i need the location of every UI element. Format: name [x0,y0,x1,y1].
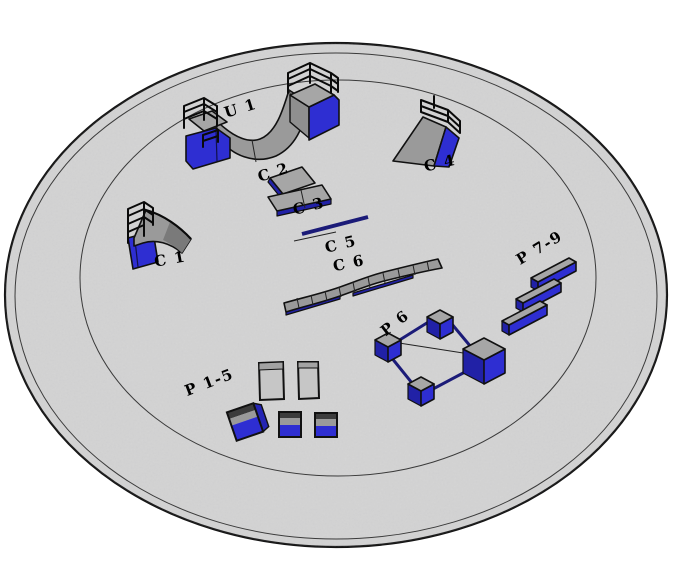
cube-blue-band [279,425,301,437]
panel-block-1 [259,362,284,400]
panel-top-band [259,362,283,370]
cube-block-2 [279,412,301,437]
course-cube-top [427,310,453,339]
panel-top-band [298,362,318,368]
cube-mid-band [279,418,301,425]
scene-canvas: U 1 C 4 C 1 C 2 C 3 C 5 [0,0,680,579]
cube-block-3 [315,413,337,437]
cube-blue-band [315,426,337,437]
panel-block-2 [298,362,319,399]
skatepark-layout-diagram: U 1 C 4 C 1 C 2 C 3 C 5 [0,0,680,579]
cube-mid-band [315,419,337,426]
course-cube-bottom [408,377,434,406]
